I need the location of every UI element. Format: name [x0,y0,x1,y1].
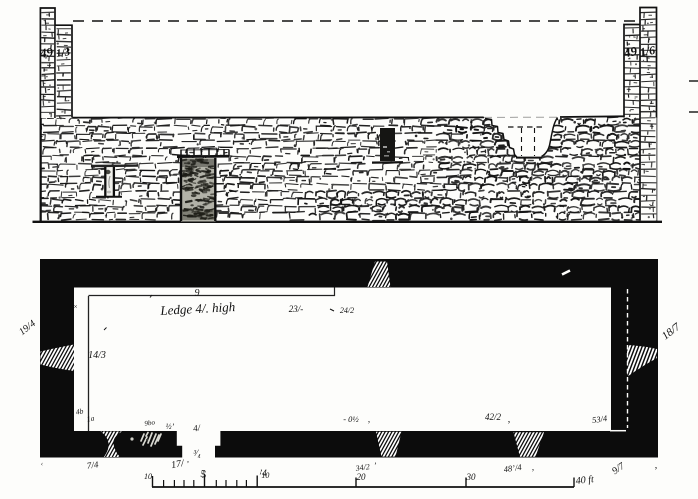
svg-text:14/3: 14/3 [88,350,106,361]
svg-text:42/2: 42/2 [485,412,502,422]
svg-text:49: 49 [38,44,54,61]
svg-text:5: 5 [202,470,207,480]
svg-text:½’: ½’ [166,422,175,431]
svg-text:7/4: 7/4 [86,459,99,471]
svg-text:1/3: 1/3 [55,46,71,60]
svg-text:’: ’ [374,461,377,470]
svg-text:,: , [655,460,658,471]
svg-text:9: 9 [195,288,200,299]
svg-text:40 ft: 40 ft [575,474,594,487]
svg-text:’10: ’10 [259,471,270,480]
svg-text:- 0½: - 0½ [343,414,359,424]
svg-text:,: , [508,414,511,425]
svg-text:23/-: 23/- [289,304,304,314]
svg-text:20: 20 [357,472,367,482]
svg-text:24/2: 24/2 [340,306,354,315]
svg-text:×: × [73,303,78,311]
svg-text:,: , [532,462,534,472]
svg-text:,: , [187,455,189,464]
svg-text:,: , [368,414,370,424]
svg-text:10: 10 [144,472,152,481]
svg-text:1/6: 1/6 [639,43,657,59]
svg-text:30: 30 [466,472,477,482]
svg-text:9bo: 9bo [144,418,156,427]
svg-text:³⁄₄: ³⁄₄ [193,448,200,458]
